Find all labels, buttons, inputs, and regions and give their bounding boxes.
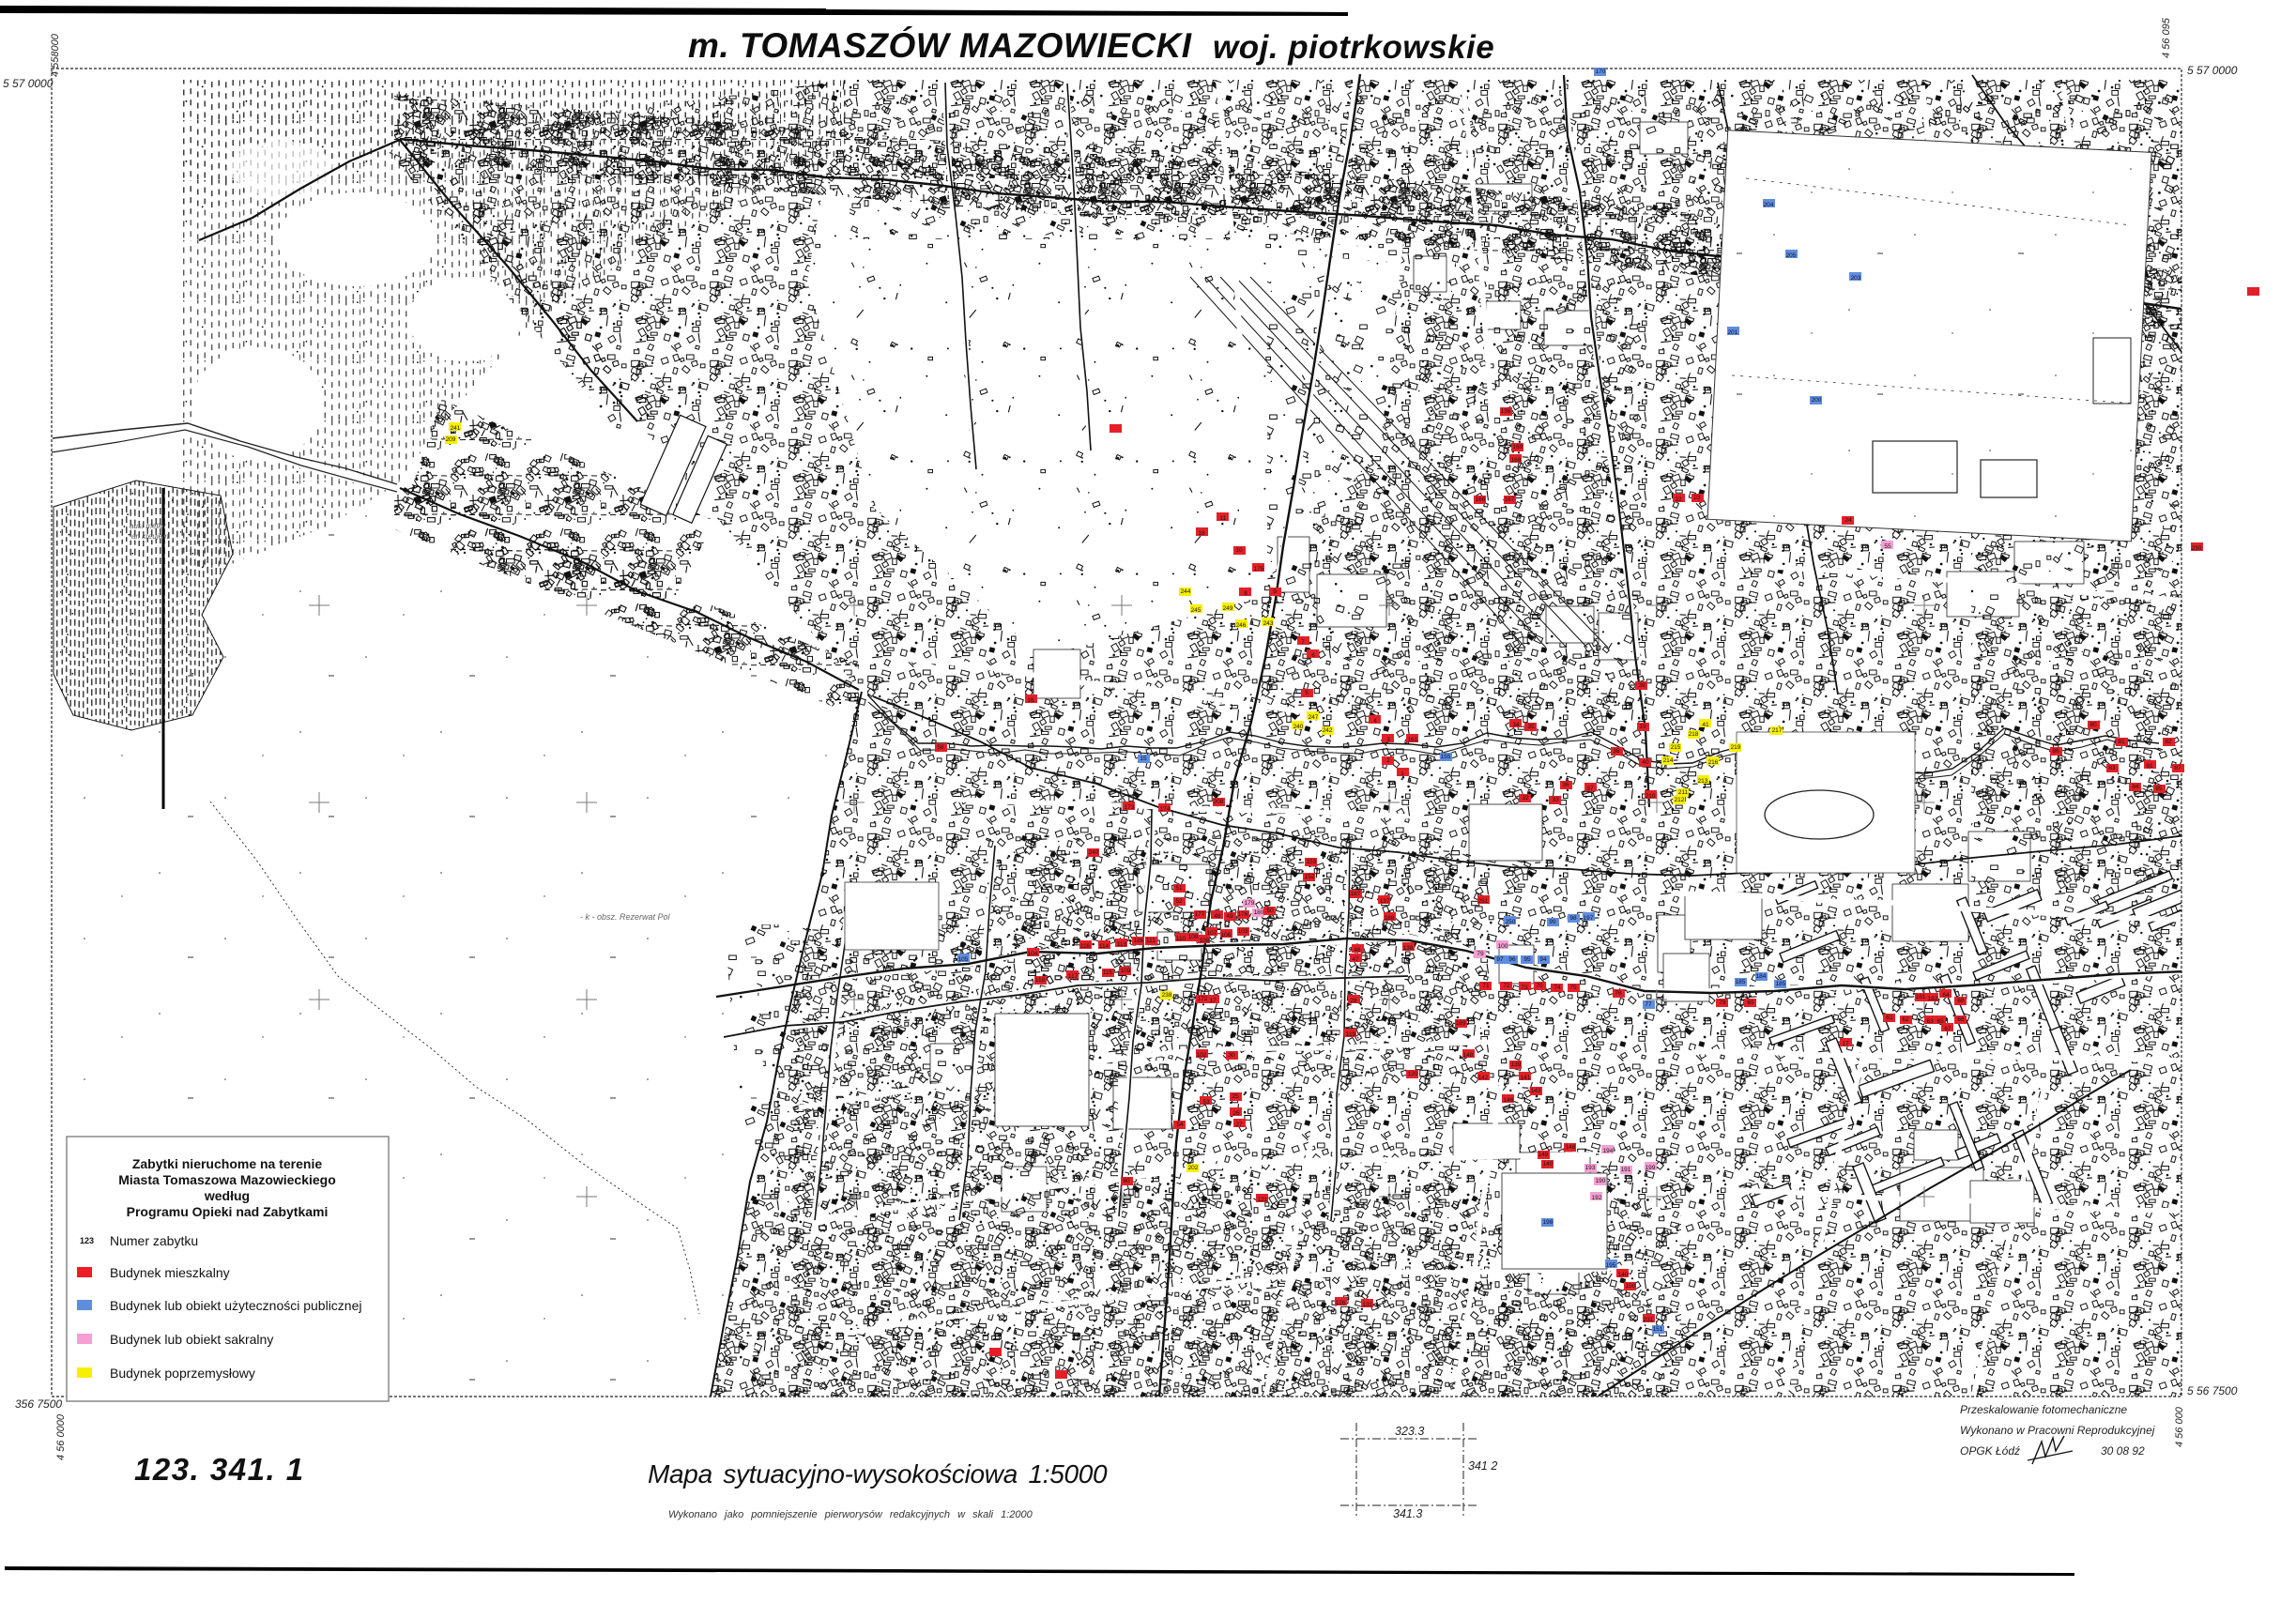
svg-text:115: 115 [1103, 969, 1113, 976]
svg-text:123. 341. 1: 123. 341. 1 [134, 1452, 305, 1487]
svg-text:woj. piotrkowskie: woj. piotrkowskie [1213, 29, 1494, 66]
svg-text:8: 8 [1244, 590, 1247, 597]
svg-text:19: 19 [1639, 724, 1646, 730]
svg-text:118: 118 [1035, 977, 1046, 984]
svg-text:71: 71 [1482, 983, 1490, 989]
svg-text:73: 73 [1521, 985, 1528, 991]
svg-text:204: 204 [1764, 202, 1774, 208]
svg-text:215: 215 [1671, 744, 1681, 751]
svg-text:214: 214 [1663, 757, 1674, 764]
svg-text:230: 230 [2192, 545, 2202, 552]
svg-text:30 08 92: 30 08 92 [2101, 1444, 2145, 1458]
svg-text:Miasta Tomaszowa Mazowieckiego: Miasta Tomaszowa Mazowieckiego [118, 1172, 336, 1187]
svg-text:194: 194 [1603, 1148, 1614, 1154]
svg-text:323.3: 323.3 [1395, 1425, 1424, 1438]
svg-text:Programu Opieki nad Zabytkami: Programu Opieki nad Zabytkami [127, 1204, 329, 1219]
svg-text:153: 153 [1307, 859, 1317, 865]
svg-text:247: 247 [1309, 714, 1319, 721]
svg-text:28: 28 [1350, 998, 1357, 1004]
svg-text:180: 180 [1254, 909, 1264, 916]
svg-text:246: 246 [1236, 622, 1247, 629]
svg-text:97: 97 [1496, 956, 1504, 963]
svg-text:22: 22 [1675, 496, 1682, 503]
svg-text:25: 25 [1232, 1093, 1239, 1100]
svg-text:47: 47 [1352, 956, 1359, 963]
svg-text:5 57 0000: 5 57 0000 [2187, 64, 2238, 77]
svg-text:1: 1 [1401, 771, 1404, 777]
svg-text:161: 161 [1408, 737, 1418, 743]
svg-text:175: 175 [1254, 566, 1264, 572]
svg-text:39: 39 [1638, 682, 1645, 689]
svg-text:356 7500: 356 7500 [15, 1397, 62, 1411]
svg-text:208: 208 [1214, 799, 1224, 805]
svg-text:46: 46 [1354, 947, 1361, 954]
svg-text:Mapa sytuacyjno-wysokościowa: Mapa sytuacyjno-wysokościowa 1:5000 [648, 1459, 1108, 1488]
svg-text:202: 202 [1188, 1165, 1199, 1171]
svg-text:Budynek poprzemysłowy: Budynek poprzemysłowy [110, 1366, 255, 1381]
svg-text:108: 108 [1200, 938, 1210, 944]
svg-text:51: 51 [1175, 885, 1183, 892]
svg-text:249: 249 [1223, 605, 1233, 612]
svg-text:15: 15 [1140, 756, 1147, 762]
svg-text:192: 192 [1592, 1195, 1602, 1201]
svg-text:100: 100 [1498, 943, 1508, 950]
svg-text:86: 86 [2052, 748, 2059, 755]
svg-text:238: 238 [1162, 992, 1172, 999]
svg-text:33: 33 [1552, 797, 1559, 803]
svg-text:240: 240 [1293, 724, 1304, 730]
svg-text:209: 209 [446, 436, 456, 443]
svg-text:121: 121 [1258, 1197, 1268, 1203]
svg-text:72: 72 [1503, 983, 1510, 989]
svg-text:219: 219 [1731, 744, 1741, 751]
svg-text:75: 75 [1569, 985, 1577, 991]
svg-text:83: 83 [2108, 765, 2116, 771]
svg-text:189: 189 [1456, 1020, 1466, 1027]
svg-text:174: 174 [1160, 806, 1171, 813]
svg-text:53: 53 [1202, 1099, 1210, 1106]
svg-text:139: 139 [1511, 1061, 1522, 1068]
svg-text:212: 212 [1675, 797, 1685, 803]
svg-text:119: 119 [1346, 1031, 1356, 1038]
svg-text:103: 103 [1238, 928, 1248, 935]
svg-text:173: 173 [1125, 804, 1135, 811]
svg-text:182: 182 [1928, 996, 1938, 1002]
svg-text:Wykonano jako pomniejszenie: Wykonano jako pomniejszenie pierworysów … [668, 1509, 1033, 1520]
svg-text:55: 55 [1884, 543, 1891, 550]
svg-text:104: 104 [1028, 951, 1038, 957]
svg-text:341 2: 341 2 [1468, 1459, 1497, 1473]
svg-text:9: 9 [1273, 588, 1277, 595]
svg-text:52: 52 [1175, 898, 1183, 905]
svg-text:191: 191 [1621, 1167, 1631, 1173]
svg-text:105: 105 [958, 956, 969, 963]
svg-text:116: 116 [1080, 943, 1091, 950]
svg-text:2: 2 [1386, 757, 1390, 764]
svg-text:170: 170 [1596, 69, 1606, 75]
svg-text:74: 74 [1554, 985, 1561, 991]
svg-text:7: 7 [1301, 639, 1305, 646]
svg-text:82: 82 [2165, 739, 2172, 745]
svg-text:193: 193 [1585, 1165, 1596, 1171]
svg-text:155: 155 [1441, 754, 1451, 760]
svg-text:201: 201 [1728, 329, 1738, 336]
svg-text:41: 41 [1702, 722, 1709, 728]
svg-text:120: 120 [1408, 1071, 1418, 1077]
svg-text:137: 137 [1380, 898, 1390, 905]
svg-text:168: 168 [1511, 457, 1522, 464]
svg-text:4 56 000: 4 56 000 [2174, 1406, 2185, 1447]
svg-text:140: 140 [1618, 1272, 1629, 1278]
svg-text:37: 37 [1586, 786, 1594, 792]
svg-text:186: 186 [1134, 938, 1144, 944]
svg-text:240: 240 [1089, 849, 1099, 856]
svg-text:80: 80 [2089, 722, 2097, 728]
svg-text:48: 48 [1214, 913, 1221, 920]
svg-text:Numer zabytku: Numer zabytku [110, 1233, 198, 1248]
svg-text:aus! melior: aus! melior [130, 522, 166, 530]
svg-text:24: 24 [1844, 517, 1852, 524]
svg-text:210: 210 [1645, 793, 1656, 800]
svg-text:102: 102 [1197, 1052, 1207, 1059]
svg-text:151: 151 [1653, 1326, 1663, 1333]
svg-text:195: 195 [1606, 1262, 1616, 1269]
svg-text:341.3: 341.3 [1393, 1507, 1422, 1520]
svg-text:111: 111 [1146, 938, 1156, 944]
svg-text:85: 85 [2155, 786, 2163, 792]
svg-text:140: 140 [1543, 1161, 1554, 1168]
svg-text:231: 231 [1644, 1317, 1654, 1323]
svg-text:148: 148 [1566, 1144, 1576, 1151]
svg-text:244: 244 [1181, 588, 1191, 595]
svg-text:146: 146 [1504, 1097, 1514, 1104]
svg-text:66: 66 [1957, 998, 1965, 1004]
svg-text:49: 49 [1226, 913, 1233, 920]
svg-text:143: 143 [1531, 1088, 1541, 1094]
svg-text:94: 94 [1539, 956, 1547, 963]
svg-text:68: 68 [1957, 1016, 1965, 1023]
svg-text:251: 251 [1478, 898, 1489, 905]
svg-text:76: 76 [1615, 990, 1622, 997]
svg-text:27: 27 [1235, 1122, 1243, 1128]
svg-text:198: 198 [1543, 1219, 1554, 1226]
svg-text:m. TOMASZÓW MAZOWIECKI: m. TOMASZÓW MAZOWIECKI [688, 26, 1192, 65]
svg-text:123: 123 [80, 1236, 94, 1245]
svg-text:23: 23 [1693, 495, 1701, 501]
svg-text:91: 91 [2146, 763, 2153, 770]
svg-text:131: 131 [1363, 1302, 1373, 1308]
svg-text:150: 150 [1626, 1283, 1636, 1290]
svg-text:ar. kreujem: ar. kreujem [131, 532, 169, 541]
svg-text:113: 113 [1117, 941, 1127, 948]
svg-text:141: 141 [1521, 1075, 1531, 1081]
svg-text:36: 36 [1562, 782, 1569, 788]
svg-text:35: 35 [1527, 724, 1535, 730]
svg-text:169: 169 [1513, 444, 1523, 450]
svg-text:188: 188 [1385, 915, 1395, 922]
svg-text:34: 34 [1512, 722, 1520, 728]
svg-text:242: 242 [1323, 727, 1333, 734]
svg-text:87: 87 [2174, 765, 2181, 771]
svg-text:200: 200 [1812, 397, 1822, 404]
svg-text:38: 38 [1613, 748, 1620, 755]
svg-text:69: 69 [1747, 1000, 1754, 1006]
svg-text:177: 177 [1195, 911, 1205, 918]
svg-text:185: 185 [1736, 979, 1746, 985]
svg-text:60: 60 [1123, 1178, 1130, 1184]
svg-text:216: 216 [1708, 759, 1719, 766]
svg-text:176: 176 [1238, 911, 1248, 918]
svg-text:5 57 0000: 5 57 0000 [3, 77, 54, 90]
svg-text:167: 167 [1505, 496, 1515, 503]
svg-text:61: 61 [1886, 1015, 1893, 1021]
svg-text:109: 109 [1121, 968, 1131, 974]
svg-text:77: 77 [1645, 1001, 1652, 1008]
svg-text:26: 26 [1232, 1110, 1240, 1117]
svg-text:98: 98 [1569, 915, 1577, 922]
svg-text:166: 166 [1476, 496, 1486, 503]
svg-text:według: według [204, 1188, 250, 1203]
svg-text:18: 18 [1198, 530, 1205, 537]
svg-text:Budynek mieszkalny: Budynek mieszkalny [110, 1265, 230, 1280]
svg-text:Wykonano w Pracowni Reprodukcy: Wykonano w Pracowni Reprodukcyjnej [1960, 1424, 2155, 1437]
svg-text:181: 181 [1916, 994, 1926, 1000]
svg-text:96: 96 [1508, 956, 1516, 963]
svg-text:250: 250 [1506, 919, 1516, 925]
svg-text:54: 54 [1176, 1122, 1184, 1128]
svg-text:67: 67 [1944, 1026, 1952, 1032]
svg-text:58: 58 [937, 744, 944, 751]
svg-text:218: 218 [1689, 731, 1699, 738]
svg-text:245: 245 [1191, 607, 1202, 614]
svg-text:99: 99 [1549, 919, 1556, 925]
svg-text:3: 3 [1386, 737, 1390, 743]
svg-text:213: 213 [1698, 778, 1708, 785]
svg-text:70: 70 [1536, 983, 1543, 989]
svg-text:185: 185 [1776, 981, 1786, 987]
svg-text:- k - obsz. Rezerwat Pol: - k - obsz. Rezerwat Pol [580, 912, 671, 922]
svg-text:79: 79 [1477, 951, 1484, 957]
svg-text:84: 84 [2132, 784, 2139, 790]
svg-text:4 56 0000: 4 56 0000 [55, 1413, 67, 1460]
svg-text:138: 138 [1403, 945, 1414, 952]
svg-text:4 558000: 4 558000 [50, 33, 61, 77]
svg-text:106: 106 [1221, 932, 1232, 939]
svg-text:148: 148 [1463, 1052, 1474, 1059]
svg-text:184: 184 [1756, 973, 1767, 980]
svg-text:5 56 7500: 5 56 7500 [2187, 1384, 2238, 1397]
svg-text:10: 10 [1235, 547, 1243, 554]
svg-text:62: 62 [1902, 1016, 1909, 1023]
svg-text:109: 109 [1188, 934, 1199, 940]
svg-text:40: 40 [1642, 759, 1649, 766]
svg-text:117: 117 [1068, 973, 1079, 980]
svg-text:81: 81 [2118, 739, 2125, 745]
svg-text:199: 199 [1645, 1165, 1656, 1171]
svg-text:11: 11 [1220, 515, 1227, 522]
svg-text:Przeskalowanie fotomechaniczne: Przeskalowanie fotomechaniczne [1960, 1403, 2127, 1416]
svg-text:32: 32 [1522, 795, 1529, 801]
svg-text:64: 64 [1942, 992, 1950, 999]
svg-text:190: 190 [1596, 1178, 1606, 1184]
svg-text:Budynek lub obiekt użytecznośc: Budynek lub obiekt użyteczności publiczn… [110, 1298, 362, 1313]
svg-text:142: 142 [1478, 1075, 1489, 1081]
svg-text:95: 95 [1523, 956, 1531, 963]
svg-text:5: 5 [1305, 690, 1309, 696]
svg-text:136: 136 [1501, 408, 1511, 415]
svg-text:17: 17 [1209, 998, 1217, 1004]
svg-text:16: 16 [1027, 697, 1034, 704]
svg-text:OPGK Łódź: OPGK Łódź [1960, 1444, 2020, 1458]
svg-text:243: 243 [1263, 620, 1274, 627]
svg-text:217: 217 [1772, 727, 1783, 734]
svg-text:114: 114 [1099, 943, 1110, 950]
svg-text:6: 6 [1311, 652, 1315, 659]
svg-text:63: 63 [1926, 1018, 1934, 1025]
svg-text:241: 241 [451, 425, 461, 432]
svg-text:152: 152 [1305, 874, 1315, 880]
svg-text:187: 187 [1351, 891, 1361, 897]
svg-text:4 56 095: 4 56 095 [2161, 17, 2172, 58]
svg-text:4: 4 [1373, 718, 1377, 725]
svg-text:205: 205 [1786, 252, 1797, 259]
svg-text:197: 197 [1584, 915, 1594, 922]
svg-text:17: 17 [1842, 1041, 1849, 1047]
svg-text:110: 110 [1176, 936, 1186, 942]
svg-text:50: 50 [1266, 908, 1274, 914]
svg-text:172: 172 [1198, 996, 1208, 1002]
svg-text:78: 78 [1719, 1000, 1726, 1006]
svg-text:211: 211 [1678, 789, 1689, 796]
svg-text:179: 179 [1245, 900, 1255, 907]
svg-text:Zabytki nieruchome na terenie: Zabytki nieruchome na terenie [132, 1156, 322, 1171]
svg-text:149: 149 [1538, 1152, 1549, 1158]
svg-text:203: 203 [1851, 275, 1861, 282]
svg-text:30: 30 [1228, 1052, 1235, 1059]
svg-text:Budynek lub obiekt sakralny: Budynek lub obiekt sakralny [110, 1332, 273, 1347]
svg-text:126: 126 [1336, 1300, 1346, 1306]
